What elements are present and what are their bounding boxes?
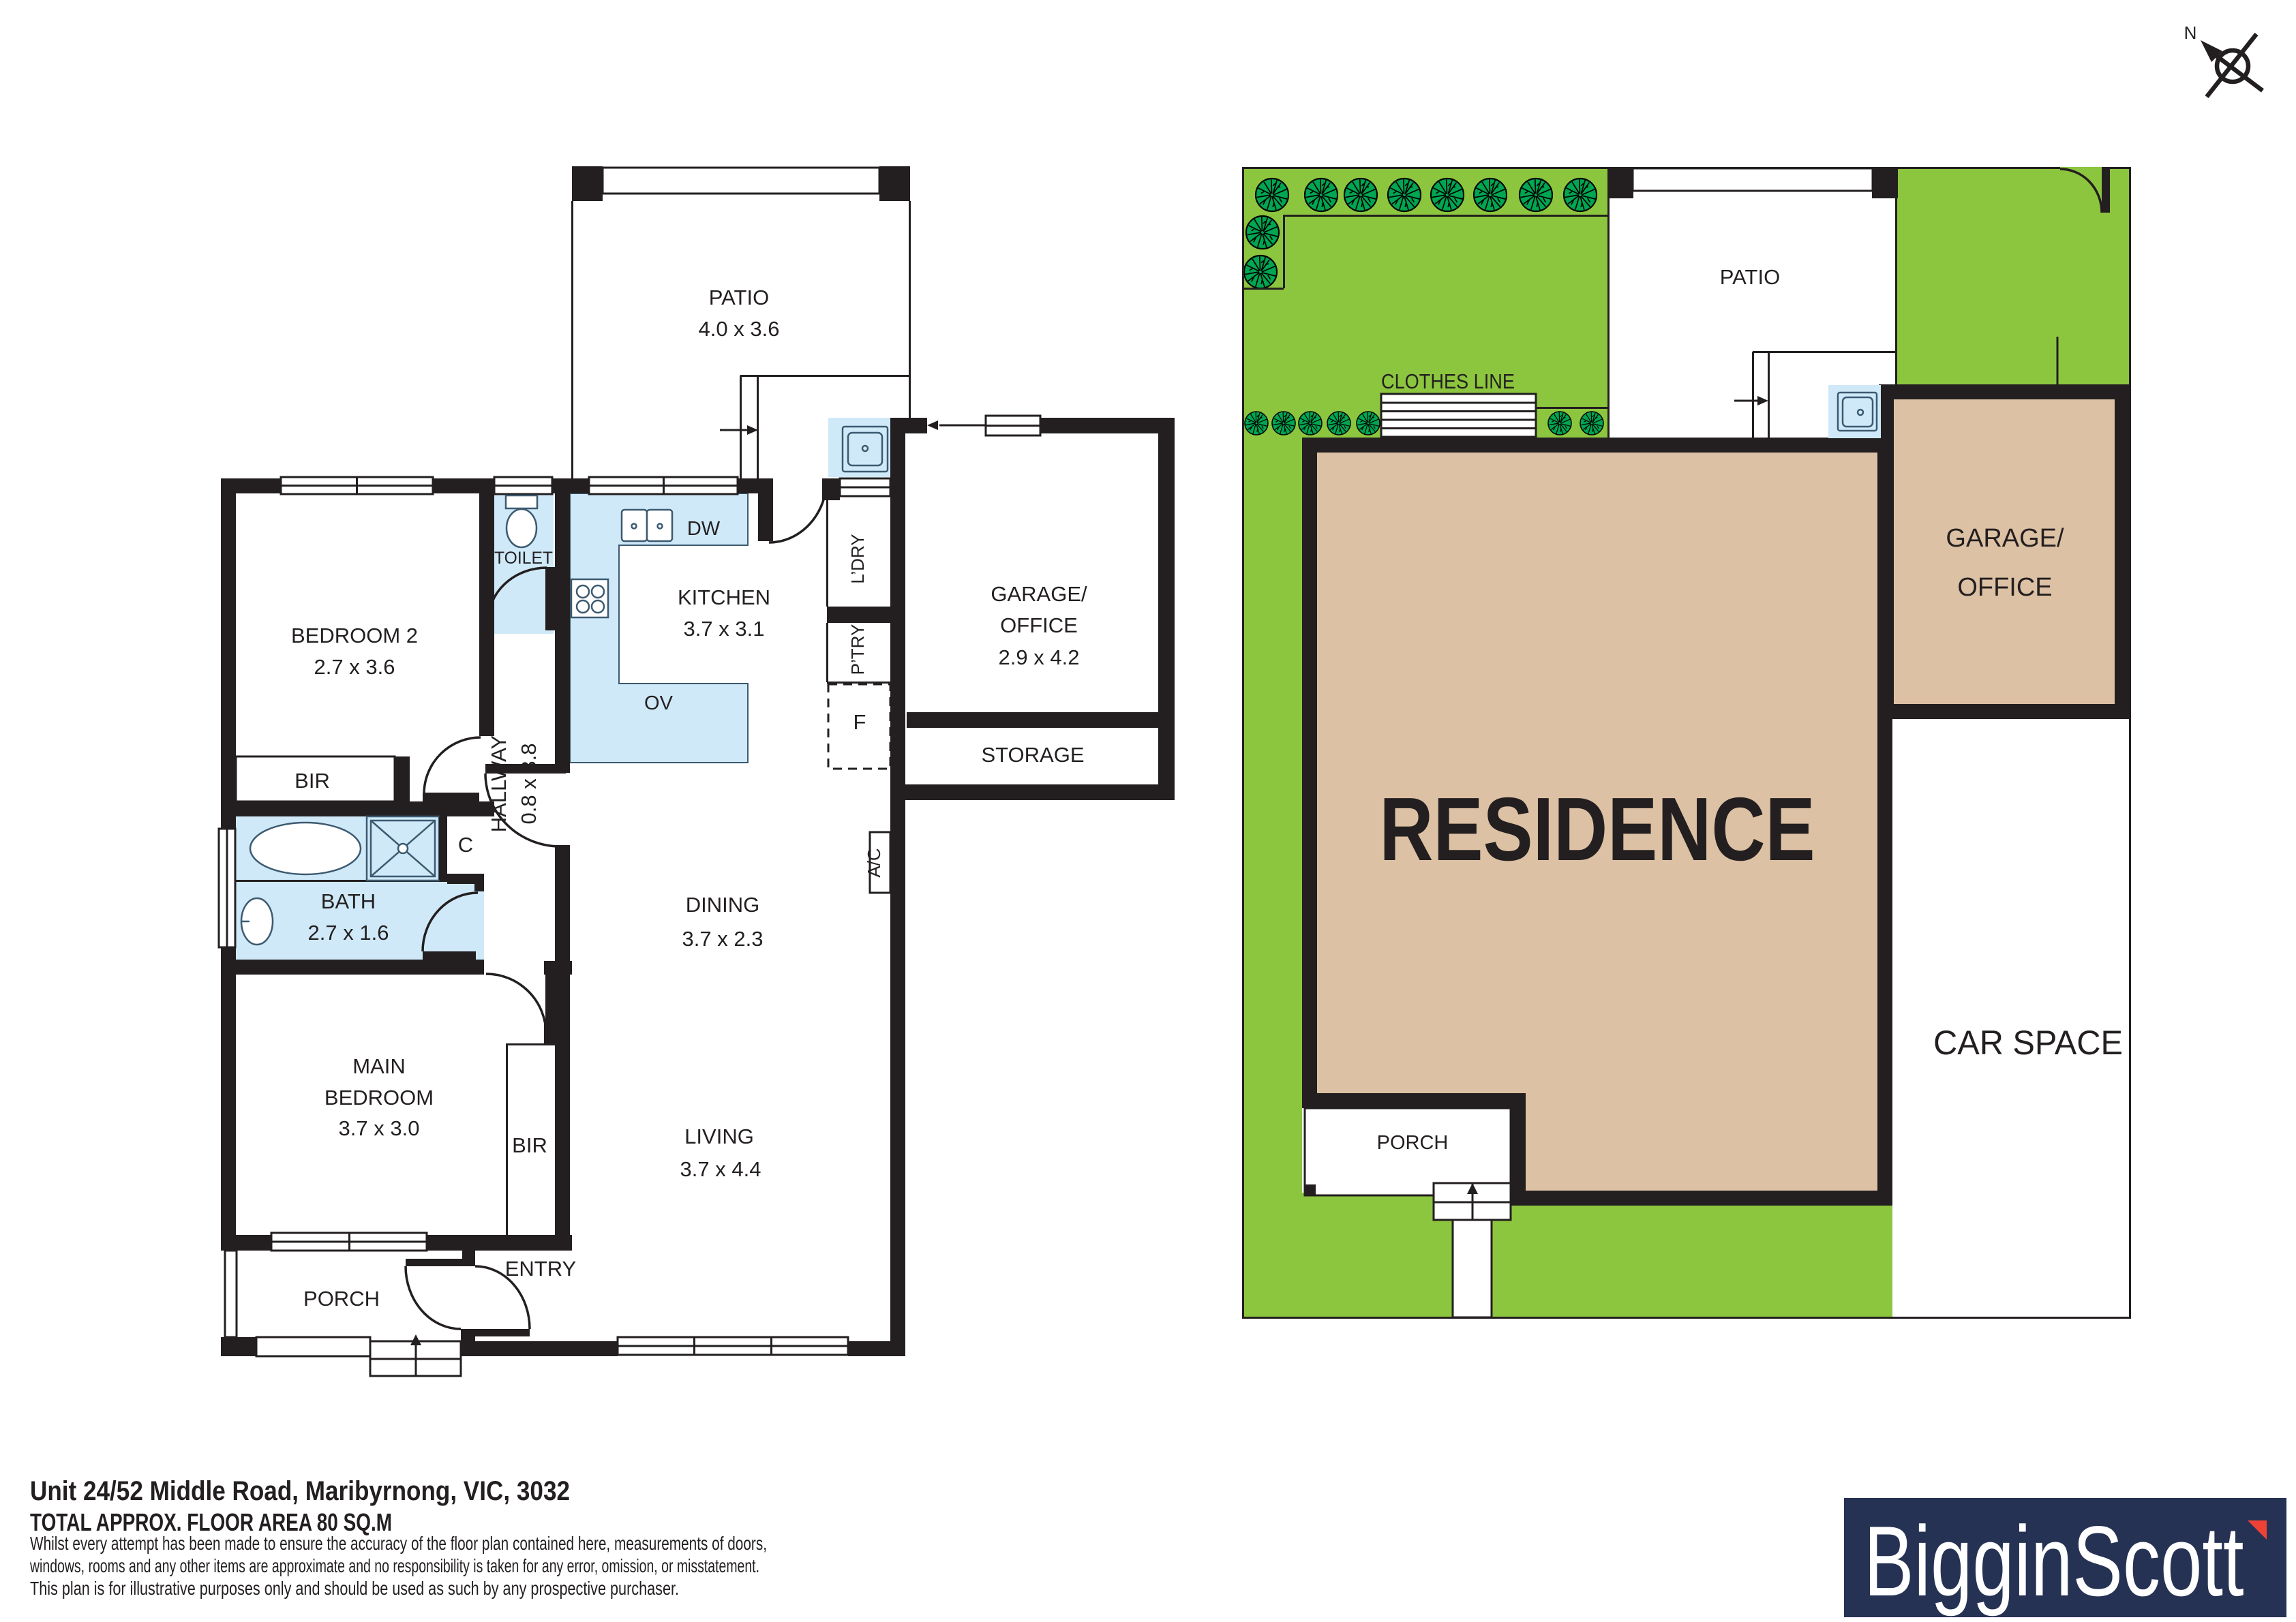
- svg-text:C: C: [458, 833, 473, 857]
- svg-text:3.7 x 2.3: 3.7 x 2.3: [682, 927, 764, 951]
- svg-text:A/C: A/C: [864, 848, 884, 877]
- svg-text:Whilst every attempt has been: Whilst every attempt has been made to en…: [30, 1533, 767, 1554]
- svg-text:4.0 x 3.6: 4.0 x 3.6: [699, 317, 780, 341]
- svg-text:F: F: [854, 710, 866, 734]
- svg-text:PATIO: PATIO: [1720, 265, 1780, 289]
- svg-text:STORAGE: STORAGE: [981, 743, 1084, 767]
- svg-text:HALLWAY: HALLWAY: [487, 735, 511, 832]
- svg-text:BIR: BIR: [294, 769, 330, 793]
- svg-text:PORCH: PORCH: [1377, 1132, 1449, 1154]
- svg-text:OFFICE: OFFICE: [1957, 573, 2052, 602]
- svg-text:PORCH: PORCH: [303, 1287, 380, 1311]
- svg-text:BIR: BIR: [512, 1133, 547, 1157]
- svg-text:3.7 x 3.0: 3.7 x 3.0: [339, 1116, 420, 1140]
- svg-text:2.7 x 3.6: 2.7 x 3.6: [314, 655, 395, 679]
- svg-text:N: N: [2184, 22, 2197, 43]
- svg-text:GARAGE/: GARAGE/: [1946, 524, 2064, 553]
- svg-text:BigginScott: BigginScott: [1864, 1506, 2244, 1617]
- svg-text:CAR SPACE: CAR SPACE: [1933, 1024, 2123, 1062]
- svg-text:TOTAL APPROX. FLOOR AREA 80 SQ: TOTAL APPROX. FLOOR AREA 80 SQ.M: [30, 1508, 392, 1536]
- svg-text:P’TRY: P’TRY: [847, 624, 868, 675]
- svg-text:GARAGE/: GARAGE/: [991, 582, 1087, 606]
- svg-text:BEDROOM: BEDROOM: [324, 1086, 434, 1110]
- svg-text:3.7 x 3.1: 3.7 x 3.1: [684, 617, 765, 641]
- svg-text:BATH: BATH: [321, 889, 376, 913]
- svg-text:windows, rooms and any other i: windows, rooms and any other items are a…: [29, 1555, 759, 1576]
- svg-text:PATIO: PATIO: [709, 286, 769, 309]
- svg-text:RESIDENCE: RESIDENCE: [1379, 778, 1815, 879]
- svg-text:KITCHEN: KITCHEN: [678, 585, 770, 609]
- svg-text:OFFICE: OFFICE: [1000, 613, 1078, 637]
- svg-text:This plan is for illustrative: This plan is for illustrative purposes o…: [30, 1578, 679, 1599]
- svg-text:2.9 x 4.2: 2.9 x 4.2: [999, 645, 1080, 669]
- svg-text:0.8 x 3.8: 0.8 x 3.8: [517, 744, 541, 825]
- svg-text:MAIN: MAIN: [352, 1054, 406, 1078]
- svg-text:CLOTHES LINE: CLOTHES LINE: [1381, 369, 1515, 393]
- svg-text:Unit 24/52 Middle Road, Mariby: Unit 24/52 Middle Road, Maribyrnong, VIC…: [30, 1476, 570, 1506]
- svg-text:LIVING: LIVING: [684, 1124, 754, 1148]
- svg-text:TOILET: TOILET: [494, 549, 553, 568]
- svg-text:2.7 x 1.6: 2.7 x 1.6: [308, 921, 389, 945]
- svg-text:OV: OV: [644, 692, 674, 714]
- svg-text:DW: DW: [687, 518, 721, 540]
- svg-text:3.7 x 4.4: 3.7 x 4.4: [680, 1157, 761, 1181]
- svg-text:BEDROOM 2: BEDROOM 2: [291, 624, 418, 647]
- svg-text:L’DRY: L’DRY: [847, 534, 868, 583]
- svg-text:ENTRY: ENTRY: [505, 1257, 577, 1281]
- svg-text:DINING: DINING: [686, 893, 760, 917]
